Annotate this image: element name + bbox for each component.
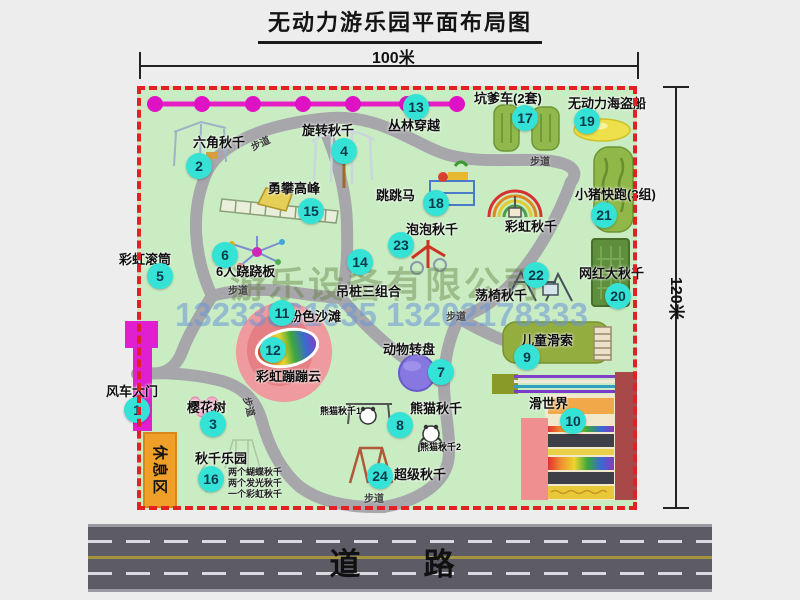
page-title: 无动力游乐园平面布局图	[0, 5, 800, 44]
rest-area-label: 休息区	[150, 444, 171, 495]
rest-area: 休息区	[143, 432, 177, 508]
piggy-run-icon	[594, 147, 633, 232]
height-dimension-label: 120米	[666, 277, 690, 320]
pink-beach-icon	[236, 302, 332, 402]
rainbow-swing-icon	[489, 191, 541, 217]
jumping-horse-icon	[430, 162, 474, 205]
top-dimension-tick-right	[637, 52, 639, 79]
park-layout-map: 无动力游乐园平面布局图 100米 120米	[0, 0, 800, 600]
kids-zipline-icon	[503, 322, 611, 363]
super-swing-icon	[350, 448, 392, 483]
rotating-swing-icon	[312, 131, 374, 188]
top-dimension-tick-left	[139, 52, 141, 79]
right-dimension-tick-bottom	[663, 507, 689, 509]
climbing-peak-icon	[220, 188, 338, 223]
page-title-text: 无动力游乐园平面布局图	[258, 5, 542, 44]
jungle-crossing-icon	[147, 96, 465, 112]
right-dimension-tick-top	[663, 86, 689, 88]
panda-swing-icon	[346, 404, 443, 452]
width-dimension-label: 100米	[372, 44, 415, 68]
pirate-ship-icon	[574, 119, 630, 141]
swing-park-sketch-icon	[200, 440, 260, 492]
road: 道 路	[88, 524, 712, 592]
bubble-swing-icon	[411, 240, 446, 274]
six-seater-seesaw-icon	[229, 236, 285, 269]
road-label: 道 路	[88, 539, 712, 584]
trail-paths	[137, 118, 574, 507]
sakura-tree-icon	[190, 397, 218, 425]
pit-car-icon	[494, 105, 559, 151]
slide-world-icon	[492, 372, 637, 500]
animal-turntable-icon	[399, 355, 435, 391]
big-net-swing-icon	[592, 239, 629, 306]
